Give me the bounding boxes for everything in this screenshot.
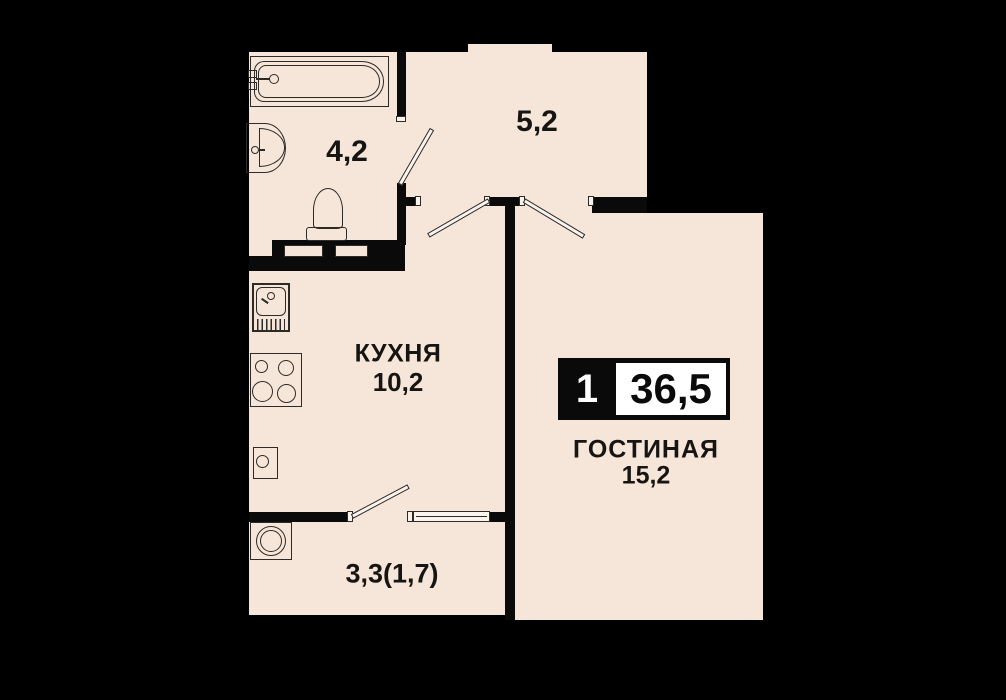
window-mid-line bbox=[416, 516, 487, 517]
wall-kitchen-loggia-left bbox=[249, 512, 348, 522]
stove-burner bbox=[252, 381, 273, 402]
bath-sink-tap-line bbox=[259, 149, 265, 151]
duct-shaft bbox=[335, 245, 368, 257]
stove-burner bbox=[278, 360, 294, 376]
stove-burner bbox=[255, 360, 268, 373]
kitchen-sink-tap bbox=[267, 292, 275, 300]
bathroom-area-label: 4,2 bbox=[326, 137, 368, 167]
toilet-icon bbox=[313, 188, 343, 229]
wall-cap bbox=[407, 511, 413, 522]
wall-hall-right bbox=[592, 197, 647, 213]
washing-machine-drum-inner bbox=[260, 530, 282, 552]
wall-bathroom-bottom bbox=[249, 256, 405, 271]
apartment-badge: 1 36,5 bbox=[558, 358, 730, 420]
hallway-area-label: 5,2 bbox=[516, 107, 558, 137]
wall-bathroom-right-upper bbox=[397, 52, 406, 117]
total-area: 36,5 bbox=[616, 363, 726, 415]
faucet-handle bbox=[248, 70, 257, 78]
wall-cap bbox=[588, 196, 594, 206]
rooms-count: 1 bbox=[558, 358, 616, 420]
wall-cap bbox=[396, 116, 406, 122]
stove-burner bbox=[277, 384, 296, 403]
toilet-tank bbox=[306, 227, 347, 241]
water-heater-dial bbox=[256, 455, 269, 468]
faucet-head bbox=[269, 74, 279, 84]
living-name-label: ГОСТИНАЯ bbox=[573, 438, 719, 463]
floor-area bbox=[0, 0, 1006, 700]
wall-kitchen-living bbox=[505, 197, 515, 620]
faucet-handle bbox=[248, 82, 257, 90]
floor-plan: 4,2 5,2 КУХНЯ 10,2 3,3(1,7) ГОСТИНАЯ 15,… bbox=[0, 0, 1006, 700]
wall-bathroom-right-lower bbox=[397, 183, 406, 245]
wall-cap bbox=[415, 196, 421, 206]
kitchen-name-label: КУХНЯ bbox=[355, 342, 442, 367]
living-area-label: 15,2 bbox=[622, 464, 671, 489]
bath-sink-tap bbox=[251, 146, 259, 154]
loggia-area-label: 3,3(1,7) bbox=[345, 561, 438, 588]
faucet-stem bbox=[256, 78, 270, 80]
kitchen-area-label: 10,2 bbox=[373, 369, 424, 395]
kitchen-sink-drain bbox=[257, 319, 285, 330]
duct-shaft bbox=[284, 245, 323, 257]
wall-kitchen-loggia-right bbox=[489, 512, 505, 522]
